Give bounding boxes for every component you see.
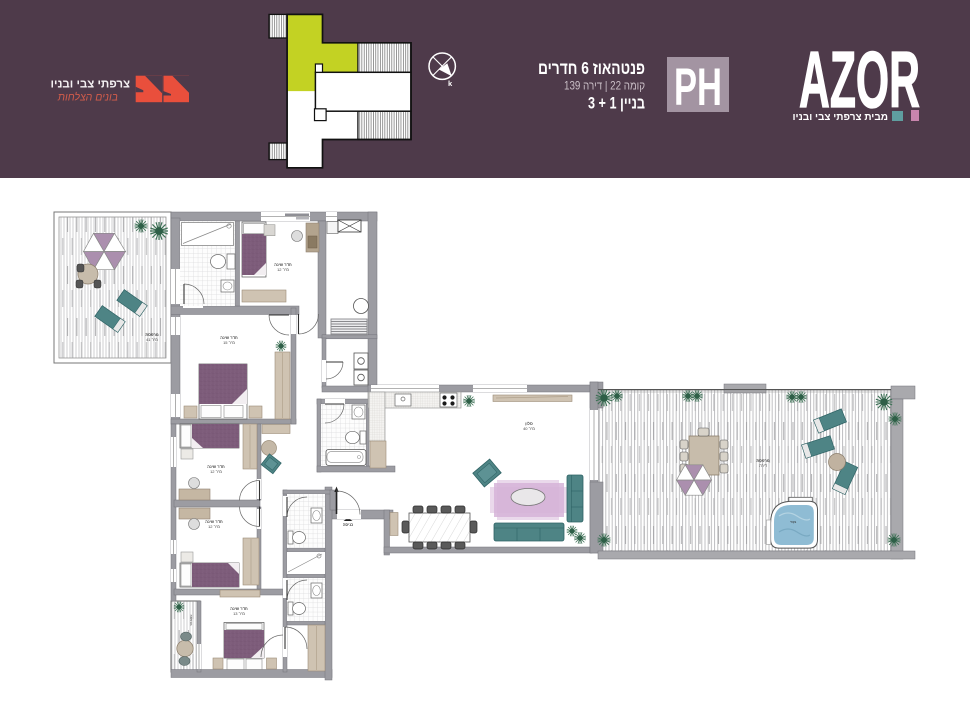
svg-text:12 מ"ר: 12 מ"ר — [210, 469, 222, 474]
svg-text:בונים הצלחות: בונים הצלחות — [57, 92, 118, 104]
svg-text:מרפסת: מרפסת — [189, 615, 193, 627]
svg-text:41 מ"ר: 41 מ"ר — [146, 337, 158, 342]
svg-text:בניין 1 + 3: בניין 1 + 3 — [588, 95, 645, 113]
svg-text:40 מ"ר: 40 מ"ר — [523, 426, 535, 431]
svg-text:12 מ"ר: 12 מ"ר — [208, 524, 220, 529]
svg-text:12 מ"ר: 12 מ"ר — [277, 267, 289, 272]
svg-text:דירה: דירה — [759, 463, 768, 468]
svg-text:פנטהאוז 6 חדרים: פנטהאוז 6 חדרים — [538, 58, 645, 78]
svg-text:צרפתי צבי ובניו: צרפתי צבי ובניו — [51, 79, 130, 91]
svg-text:כניסה: כניסה — [343, 522, 354, 527]
svg-text:13 מ"ר: 13 מ"ר — [233, 611, 245, 616]
svg-text:PH: PH — [674, 56, 722, 116]
svg-text:קומה 22 | דירה 139: קומה 22 | דירה 139 — [564, 79, 645, 93]
svg-text:גקוזי: גקוזי — [790, 520, 797, 524]
svg-text:מבית צרפתי צבי ובניו: מבית צרפתי צבי ובניו — [792, 112, 888, 123]
svg-text:15 מ"ר: 15 מ"ר — [223, 340, 235, 345]
svg-text:AZOR: AZOR — [799, 35, 920, 124]
